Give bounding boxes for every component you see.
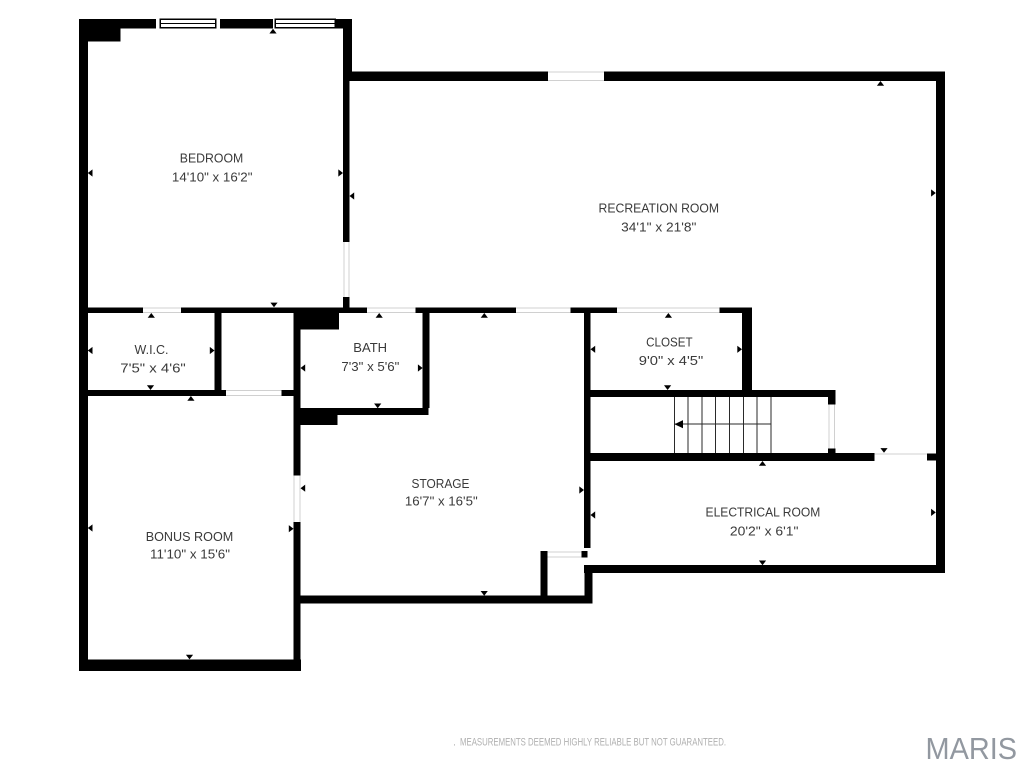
svg-text:14'10" x 16'2": 14'10" x 16'2" xyxy=(172,169,253,184)
svg-text:BONUS ROOM: BONUS ROOM xyxy=(146,529,234,544)
svg-text:ELECTRICAL ROOM: ELECTRICAL ROOM xyxy=(706,505,821,520)
svg-text:.: . xyxy=(453,737,456,749)
svg-text:16'7" x 16'5": 16'7" x 16'5" xyxy=(405,493,478,508)
svg-text:W.I.C.: W.I.C. xyxy=(135,342,169,357)
svg-text:BEDROOM: BEDROOM xyxy=(180,151,244,166)
svg-text:34'1" x 21'8": 34'1" x 21'8" xyxy=(621,219,696,234)
svg-text:CLOSET: CLOSET xyxy=(646,335,693,350)
svg-text:9'0" x 4'5": 9'0" x 4'5" xyxy=(639,353,704,368)
svg-text:BATH: BATH xyxy=(353,340,387,355)
svg-text:7'5" x 4'6": 7'5" x 4'6" xyxy=(120,360,186,375)
svg-text:MARIS: MARIS xyxy=(926,731,1018,766)
svg-text:7'3" x 5'6": 7'3" x 5'6" xyxy=(341,359,399,374)
svg-text:11'10" x 15'6": 11'10" x 15'6" xyxy=(150,547,230,562)
svg-text:20'2" x 6'1": 20'2" x 6'1" xyxy=(730,524,799,539)
svg-text:MEASUREMENTS DEEMED HIGHLY REL: MEASUREMENTS DEEMED HIGHLY RELIABLE BUT … xyxy=(460,737,726,749)
svg-text:RECREATION ROOM: RECREATION ROOM xyxy=(599,201,720,216)
svg-text:STORAGE: STORAGE xyxy=(412,476,470,491)
